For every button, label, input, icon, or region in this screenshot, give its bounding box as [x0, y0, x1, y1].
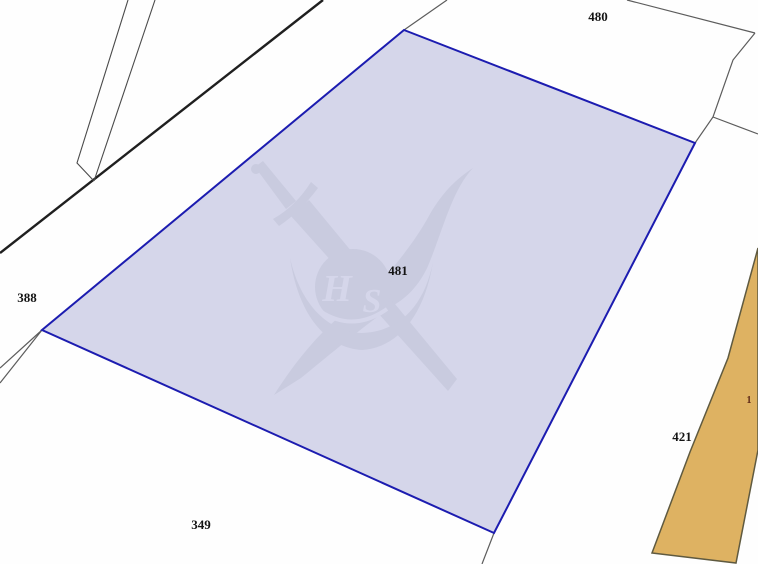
parcel-label-421: 421	[672, 429, 692, 444]
point-label-1: 1	[747, 395, 752, 406]
watermark-letter-h: H	[321, 268, 353, 310]
parcel-label-480: 480	[588, 9, 608, 24]
parcel-label-388: 388	[17, 290, 37, 305]
parcel-label-349: 349	[191, 517, 211, 532]
cadastral-map: H S 480 388 481 349 421 1	[0, 0, 758, 564]
parcel-label-481: 481	[388, 263, 408, 278]
map-viewport: H S 480 388 481 349 421 1	[0, 0, 758, 564]
